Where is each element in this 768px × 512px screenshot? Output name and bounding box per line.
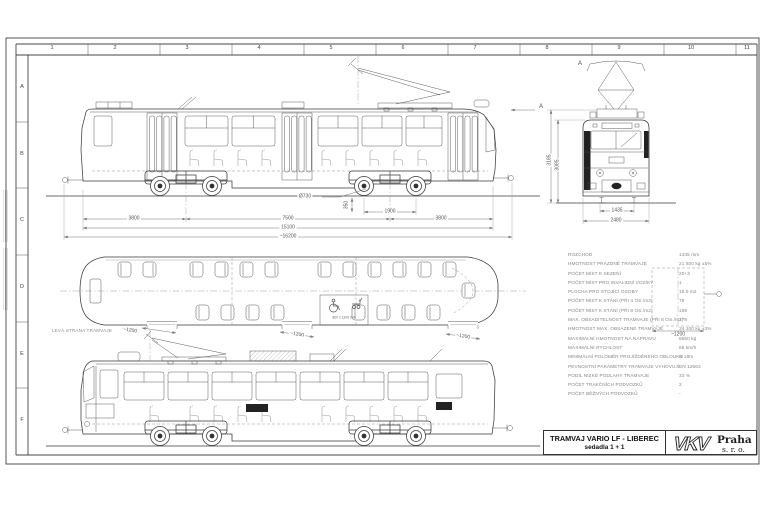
dim-height-roof: 3085 xyxy=(555,158,560,171)
spec-table: ROZCHOD1435 mm HMOTNOST PRÁZDNÉ TRAMVAJE… xyxy=(568,252,760,401)
vkv-praha-logo: VKV Praha s. r. o. xyxy=(667,431,755,454)
spec-row: POČET MÍST PRO INVALIDNÍ VOZÍKY1 xyxy=(568,280,760,289)
dim-right-overhang: 3800 xyxy=(434,217,448,222)
company-logo: VKV Praha s. r. o. xyxy=(666,431,756,454)
grid-row-d: D xyxy=(16,284,28,290)
spec-row: MAXIMÁLNÍ HMOTNOST NA NÁPRAVU8550 kg xyxy=(568,336,760,345)
dim-left-overhang: 3800 xyxy=(127,217,141,222)
spec-row: HMOTNOST MAX. OBSAZENÉ TRAMVAJE34 100 kg… xyxy=(568,326,760,335)
wheelchair-icon xyxy=(330,299,340,312)
grid-col-2: 2 xyxy=(105,45,125,51)
pantograph-side-right xyxy=(144,330,226,364)
grid-col-7: 7 xyxy=(465,45,485,51)
grid-col-6: 6 xyxy=(393,45,413,51)
dim-pivot-spacing: 7500 xyxy=(281,217,295,222)
drawing-sheet: 1 2 3 4 5 6 7 8 9 10 11 A B C D E F 3800… xyxy=(0,0,768,512)
grid-row-c: C xyxy=(16,217,28,223)
drawing-subtitle: sedadla 1 + 1 xyxy=(544,444,665,451)
dim-wheel-diameter: Ø730 xyxy=(297,195,312,200)
side-doors xyxy=(147,113,478,180)
grid-col-10: 10 xyxy=(681,45,701,51)
logo-letters: VKV xyxy=(671,434,712,454)
spec-row: HMOTNOST PRÁZDNÉ TRAMVAJE21 500 kg ±5% xyxy=(568,261,760,270)
wheelchair-space-label: 800 x 1200 mm xyxy=(331,316,357,319)
grid-col-8: 8 xyxy=(537,45,557,51)
spec-row: PODÍL NÍZKÉ PODLAHY TRAMVAJE33 % xyxy=(568,373,760,382)
front-view-label: A xyxy=(576,61,583,67)
grid-row-b: B xyxy=(16,151,28,157)
margin-note-2 xyxy=(3,248,9,310)
pantograph-side xyxy=(348,56,452,111)
dim-floor-height: 350 xyxy=(345,200,350,210)
spec-row: POČET MÍST K SEZENÍ20+3 xyxy=(568,271,760,280)
spec-row: MAX. OBSADITELNOST TRAMVAJE (PŘI 8 OS./m… xyxy=(568,317,760,326)
drawing-title: TRAMVAJ VARIO LF - LIBEREC xyxy=(544,434,665,443)
front-view-dimensions xyxy=(547,110,649,224)
dim-width: 2480 xyxy=(609,219,623,224)
logo-suffix: s. r. o. xyxy=(722,445,745,454)
grid-col-11: 11 xyxy=(737,45,757,51)
dim-height-pantograph: 3185 xyxy=(548,153,553,166)
front-door-strip xyxy=(584,131,591,190)
grid-row-f: F xyxy=(16,417,28,423)
front-view xyxy=(547,61,676,224)
dim-total-length: ~16200 xyxy=(278,235,298,240)
grid-col-1: 1 xyxy=(42,45,62,51)
spec-row: PEVNOSTNÍ PARAMETRY TRAMVAJE VYHOVUJÍEN … xyxy=(568,364,760,373)
grid-col-4: 4 xyxy=(249,45,269,51)
view-a-arrow-label: A xyxy=(537,104,544,110)
side-view-right-elevation xyxy=(46,330,540,446)
spec-row: MAXIMÁLNÍ RYCHLOST65 km/h xyxy=(568,345,760,354)
title-block: TRAMVAJ VARIO LF - LIBEREC sedadla 1 + 1… xyxy=(543,430,757,455)
spec-row: ROZCHOD1435 mm xyxy=(568,252,760,261)
plan-caption: LEVÁ STRANA TRAMVAJE xyxy=(50,329,113,333)
grid-row-e: E xyxy=(16,351,28,357)
dim-gauge: 1435 xyxy=(610,209,624,214)
plan-dimensions xyxy=(142,328,480,339)
spec-row: MINIMÁLNÍ POLOMĚR PROJÍŽDĚNÉHO OBLOUKUR … xyxy=(568,354,760,363)
grid-col-5: 5 xyxy=(321,45,341,51)
grid-col-3: 3 xyxy=(177,45,197,51)
dim-wheelbase: 1900 xyxy=(383,210,397,215)
margin-note-1 xyxy=(3,190,9,242)
pantograph-front xyxy=(587,61,645,109)
spec-row: POČET MÍST K STÁNÍ (PŘI 4 OS./m2)79 xyxy=(568,298,760,307)
spec-row: POČET MÍST K STÁNÍ (PŘI 8 OS./m2)159 xyxy=(568,308,760,317)
spec-row: POČET BĚŽNÝCH PODVOZKŮ- xyxy=(568,391,760,400)
grid-row-a: A xyxy=(16,84,28,90)
grid-col-9: 9 xyxy=(609,45,629,51)
wiper xyxy=(621,133,637,147)
dim-body-length: 15100 xyxy=(280,226,297,231)
title-block-text: TRAMVAJ VARIO LF - LIBEREC sedadla 1 + 1 xyxy=(544,431,666,454)
side-view-left-elevation xyxy=(46,56,540,240)
